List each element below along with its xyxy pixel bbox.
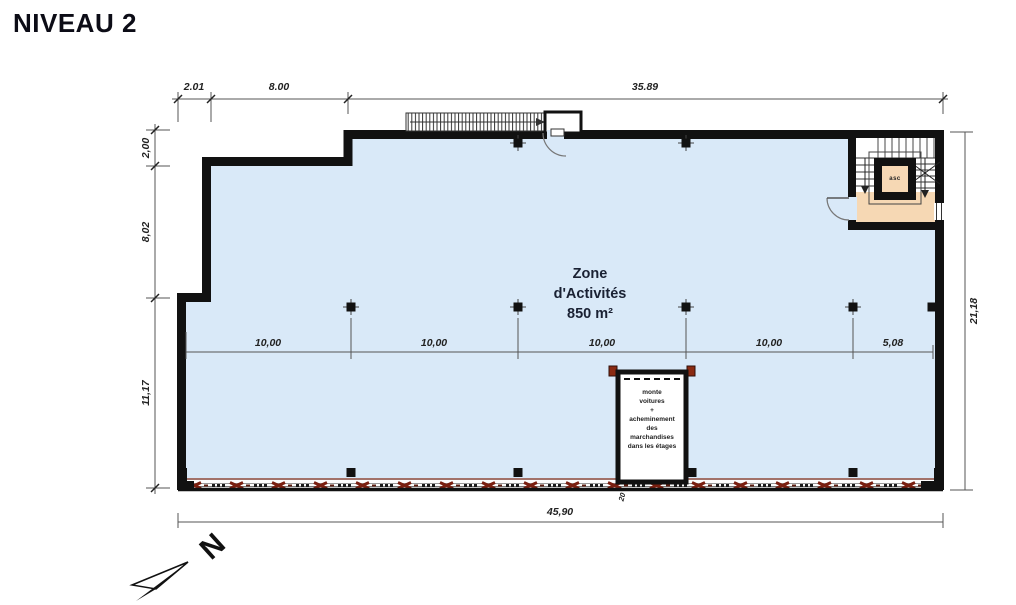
dim-bay-5: 5,08 <box>883 337 903 349</box>
dim-left-2: 8,02 <box>140 222 152 242</box>
dim-bottom-total: 45,90 <box>547 506 573 518</box>
dim-top-1: 2.01 <box>184 81 204 93</box>
dim-bay-2: 10,00 <box>421 337 447 349</box>
car-lift-label: monte voitures + acheminement des marcha… <box>620 388 684 451</box>
dim-top-3: 35.89 <box>632 81 658 93</box>
zone-label-line2: d'Activités <box>554 284 627 304</box>
exterior-stair <box>406 113 545 131</box>
floor-plan-drawing <box>0 0 1016 605</box>
dim-right-total: 21,18 <box>968 298 980 324</box>
car-lift-line: + <box>620 406 684 415</box>
page-title: NIVEAU 2 <box>13 8 137 39</box>
car-lift-line: dans les étages <box>620 442 684 451</box>
glazed-facade <box>178 478 943 490</box>
car-lift-line: monte <box>620 388 684 397</box>
elevator-label: asc <box>889 176 901 182</box>
left-dimension-line <box>146 124 170 494</box>
dim-left-3: 11,17 <box>140 380 152 406</box>
corner-right2 <box>921 481 943 490</box>
dim-bay-4: 10,00 <box>756 337 782 349</box>
dim-bay-3: 10,00 <box>589 337 615 349</box>
zone-label: Zone d'Activités 850 m² <box>554 264 627 324</box>
zone-label-line1: Zone <box>554 264 627 284</box>
dim-bay-1: 10,00 <box>255 337 281 349</box>
dim-top-2: 8.00 <box>269 81 289 93</box>
zone-area: 850 m² <box>554 304 627 324</box>
car-lift-line: marchandises <box>620 433 684 442</box>
car-lift-line: acheminement <box>620 415 684 424</box>
dim-left-1: 2,00 <box>140 138 152 158</box>
corner-left2 <box>177 481 194 490</box>
north-arrow-icon <box>132 562 188 601</box>
car-lift-line: voitures <box>620 397 684 406</box>
car-lift-line: des <box>620 424 684 433</box>
